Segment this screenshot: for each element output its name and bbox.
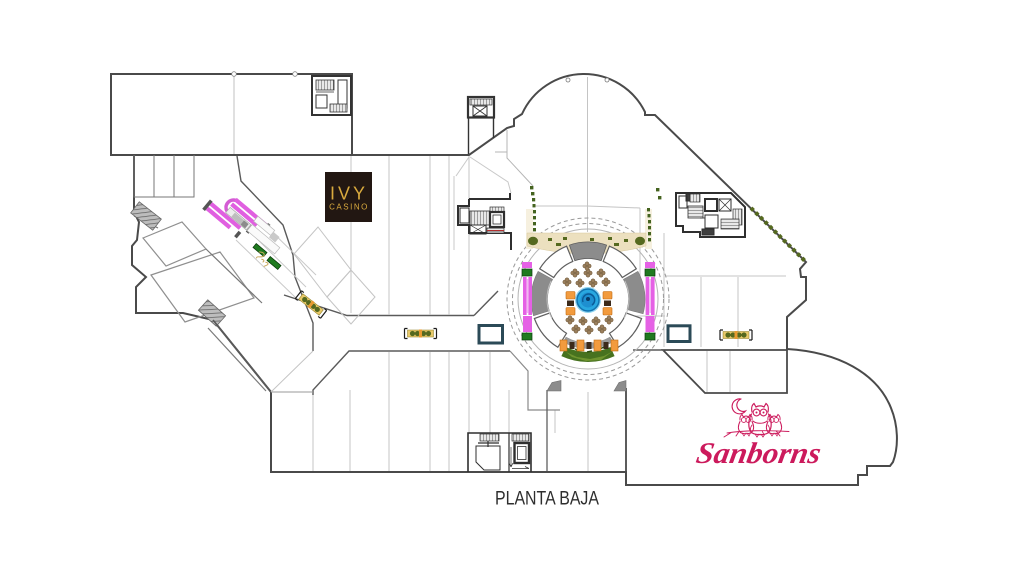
svg-text:CASINO: CASINO xyxy=(329,203,369,212)
svg-text:Sanborns: Sanborns xyxy=(694,436,824,470)
svg-text:IVY: IVY xyxy=(330,184,368,204)
svg-text:PLANTA BAJA: PLANTA BAJA xyxy=(495,488,599,510)
